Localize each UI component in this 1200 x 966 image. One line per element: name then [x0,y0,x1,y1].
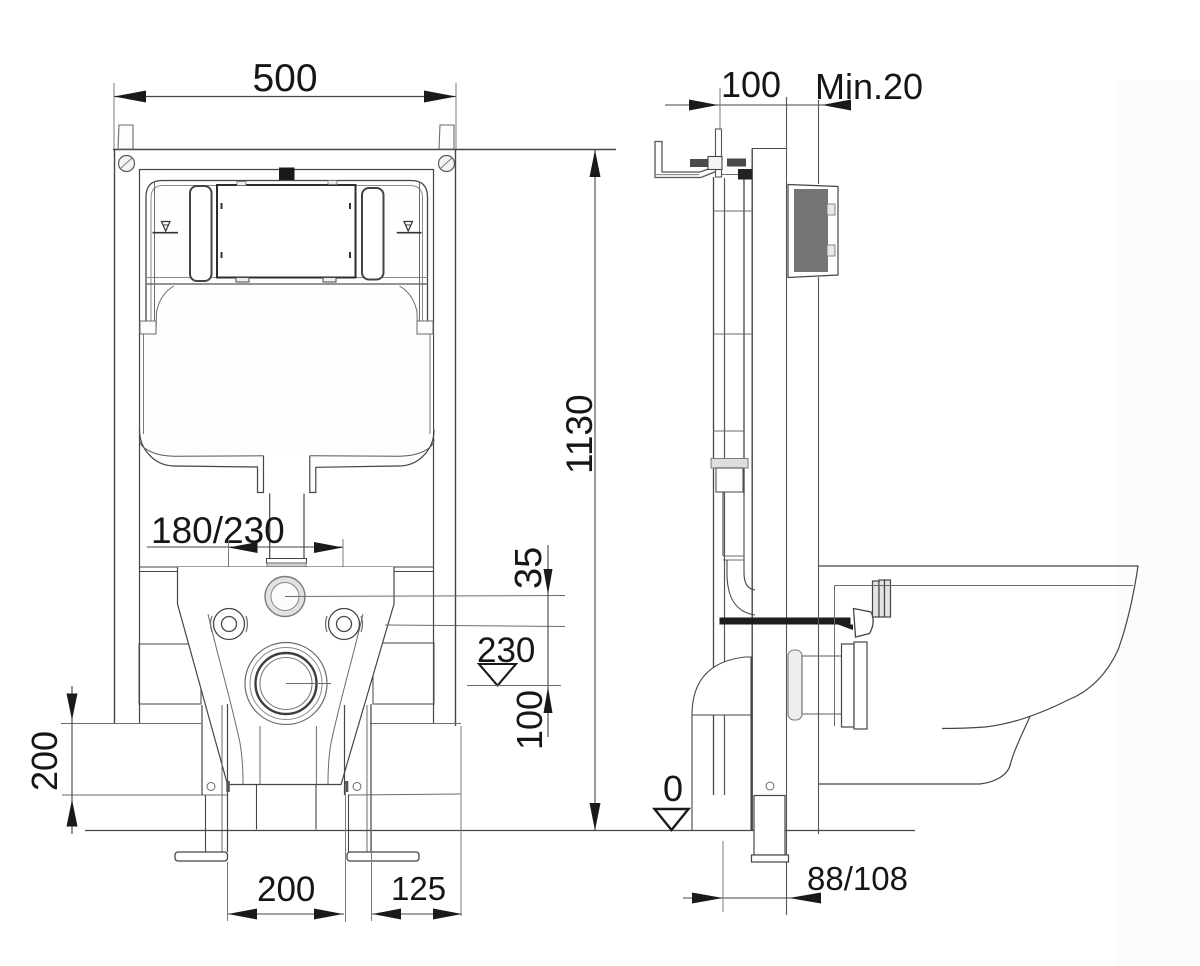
svg-text:1130: 1130 [559,394,600,474]
svg-text:35: 35 [508,547,550,589]
svg-text:100: 100 [509,690,550,750]
svg-text:0: 0 [663,768,683,809]
svg-text:Min.20: Min.20 [815,66,923,107]
svg-text:200: 200 [24,731,65,791]
svg-text:200: 200 [257,870,315,909]
svg-text:500: 500 [252,57,317,100]
svg-text:100: 100 [721,64,781,105]
svg-text:125: 125 [391,870,446,907]
svg-text:88/108: 88/108 [807,860,908,897]
svg-text:180/230: 180/230 [151,510,285,551]
